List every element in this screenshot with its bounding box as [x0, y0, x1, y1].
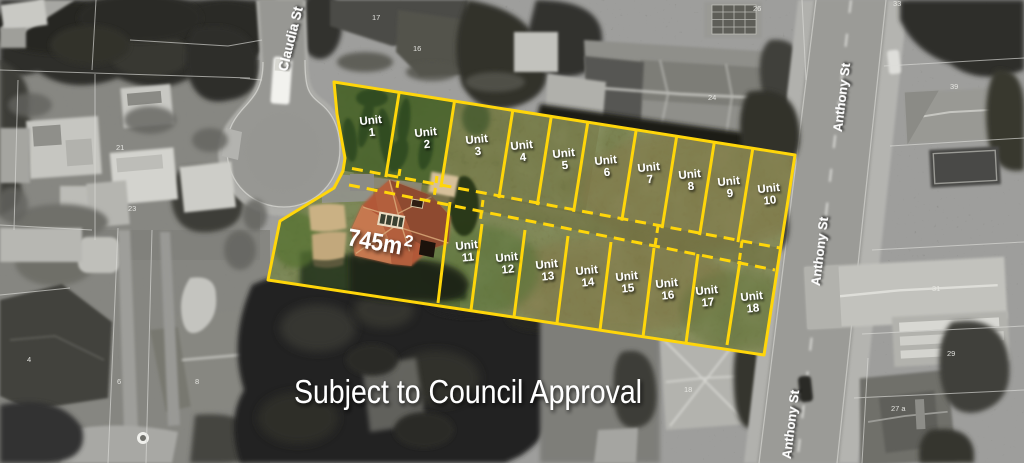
svg-text:6: 6: [117, 377, 121, 386]
svg-text:31: 31: [932, 284, 940, 293]
svg-text:17: 17: [372, 13, 380, 22]
svg-text:27 a: 27 a: [891, 404, 906, 413]
svg-text:21: 21: [116, 143, 124, 152]
svg-text:18: 18: [684, 385, 692, 394]
svg-text:23: 23: [128, 204, 136, 213]
svg-text:26: 26: [753, 4, 761, 13]
svg-text:39: 39: [950, 82, 958, 91]
svg-text:8: 8: [195, 377, 199, 386]
svg-text:29: 29: [947, 349, 955, 358]
svg-text:16: 16: [413, 44, 421, 53]
svg-text:33: 33: [893, 0, 901, 8]
svg-text:4: 4: [27, 355, 31, 364]
svg-text:Subject to Council Approval: Subject to Council Approval: [294, 373, 642, 410]
svg-text:24: 24: [708, 93, 716, 102]
